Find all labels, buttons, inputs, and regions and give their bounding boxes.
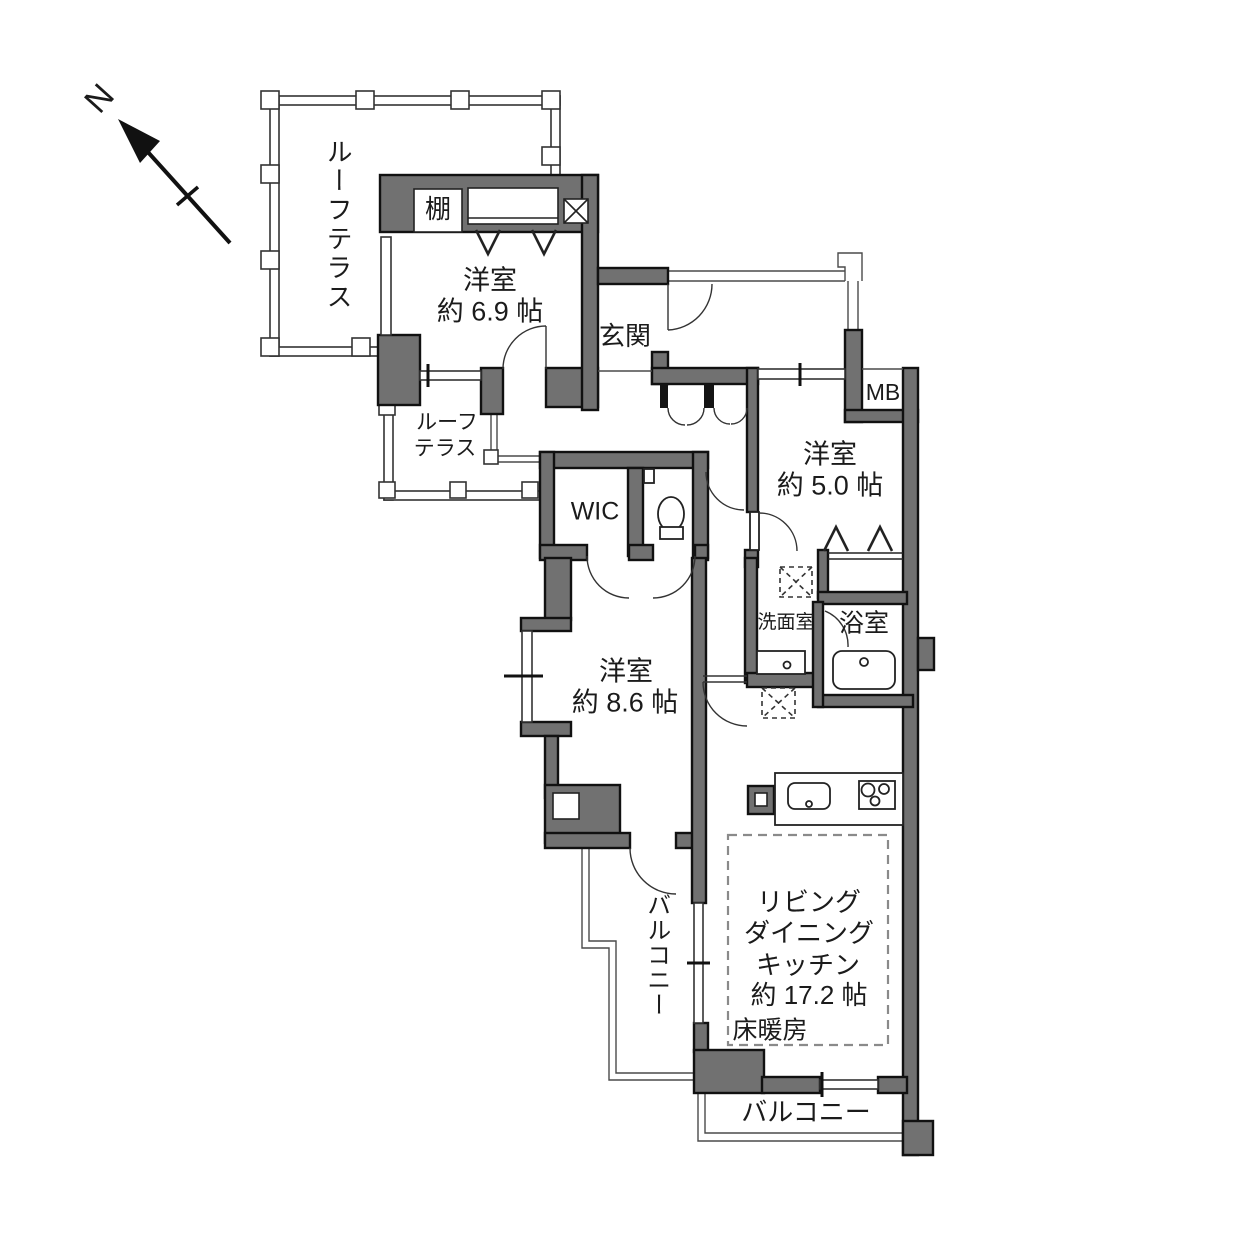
label-washroom: 洗面室	[757, 612, 814, 634]
label-ldk-area: 約 17.2 帖	[750, 981, 867, 1011]
label-bedroom-86-name: 洋室	[599, 656, 653, 687]
fridge-space-icon	[762, 688, 795, 718]
label-bedroom-50-area: 約 5.0 帖	[777, 470, 884, 501]
floorplan: N ルーフテラス 棚 洋室 約 6.9 帖 玄関 MB 洋室 約 5.0 帖 ル…	[0, 0, 1252, 1252]
label-roof-terrace-north: ルーフテラス	[322, 138, 352, 312]
closet-69	[468, 188, 558, 254]
label-meter-box: MB	[866, 379, 901, 405]
label-bathroom: 浴室	[839, 610, 889, 639]
floorplan-canvas	[0, 0, 1252, 1252]
label-roof-terrace-sub-line2: テラス	[414, 437, 477, 461]
washer-space-icon	[780, 567, 812, 597]
label-bedroom-69-area: 約 6.9 帖	[437, 296, 544, 327]
exterior-walkway-line	[668, 253, 862, 332]
label-balcony-south: バルコニー	[741, 1098, 870, 1128]
label-ldk-line3: キッチン	[756, 951, 860, 981]
vanity-sink-icon	[757, 651, 805, 674]
label-ldk-line2: ダイニング	[744, 919, 874, 949]
label-ldk-line1: リビング	[757, 888, 861, 918]
compass-icon	[118, 119, 230, 243]
label-bedroom-69-name: 洋室	[463, 265, 517, 296]
label-bedroom-86-area: 約 8.6 帖	[572, 687, 679, 718]
vent-box-icon	[564, 199, 588, 223]
toilet-icon	[644, 469, 684, 539]
label-balcony-west: バルコニー	[642, 893, 670, 1018]
label-shelf: 棚	[425, 195, 451, 225]
label-roof-terrace-sub-line1: ルーフ	[416, 411, 478, 435]
label-bedroom-50-name: 洋室	[803, 439, 857, 470]
bathtub-icon	[833, 651, 895, 689]
label-floor-heating: 床暖房	[732, 1017, 807, 1046]
kitchen-counter	[775, 773, 903, 825]
label-entrance: 玄関	[599, 322, 651, 352]
label-walk-in-closet: WIC	[571, 498, 620, 527]
balcony-west-outline	[582, 848, 694, 1080]
closet-50	[824, 527, 903, 559]
